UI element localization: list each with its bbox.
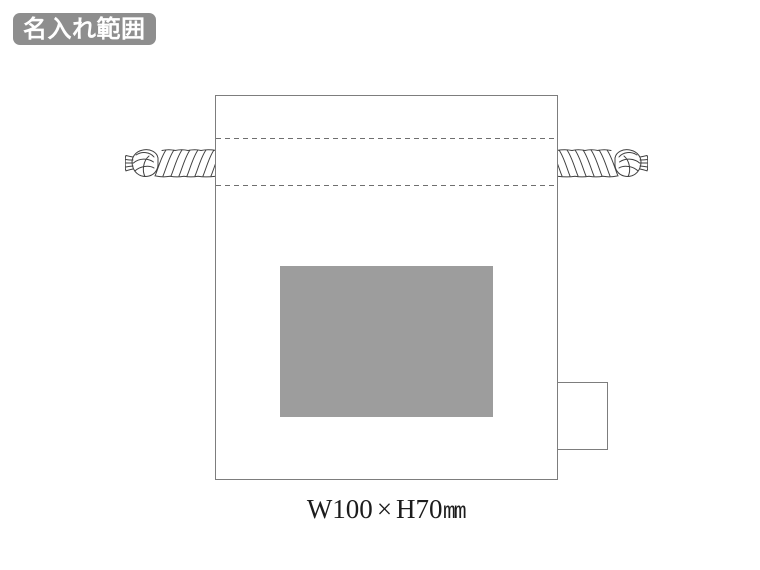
- size-caption: W100×H70mm: [215, 494, 558, 525]
- size-caption-separator: ×: [373, 494, 396, 524]
- drawstring-channel-line-bottom: [216, 185, 557, 186]
- drawstring-cord-left-icon: [125, 147, 216, 179]
- imprint-print-area: [280, 266, 493, 417]
- imprint-range-badge: 名入れ範囲: [13, 13, 156, 45]
- imprint-area-diagram: 名入れ範囲: [0, 0, 760, 570]
- size-caption-height: H70: [396, 494, 443, 524]
- size-caption-width: W100: [307, 494, 373, 524]
- side-tag: [557, 382, 608, 450]
- size-caption-unit: mm: [443, 499, 465, 525]
- imprint-range-badge-label: 名入れ範囲: [23, 15, 146, 43]
- pouch-outline: [215, 95, 558, 480]
- drawstring-channel-line-top: [216, 138, 557, 139]
- drawstring-cord-right-icon: [557, 147, 648, 179]
